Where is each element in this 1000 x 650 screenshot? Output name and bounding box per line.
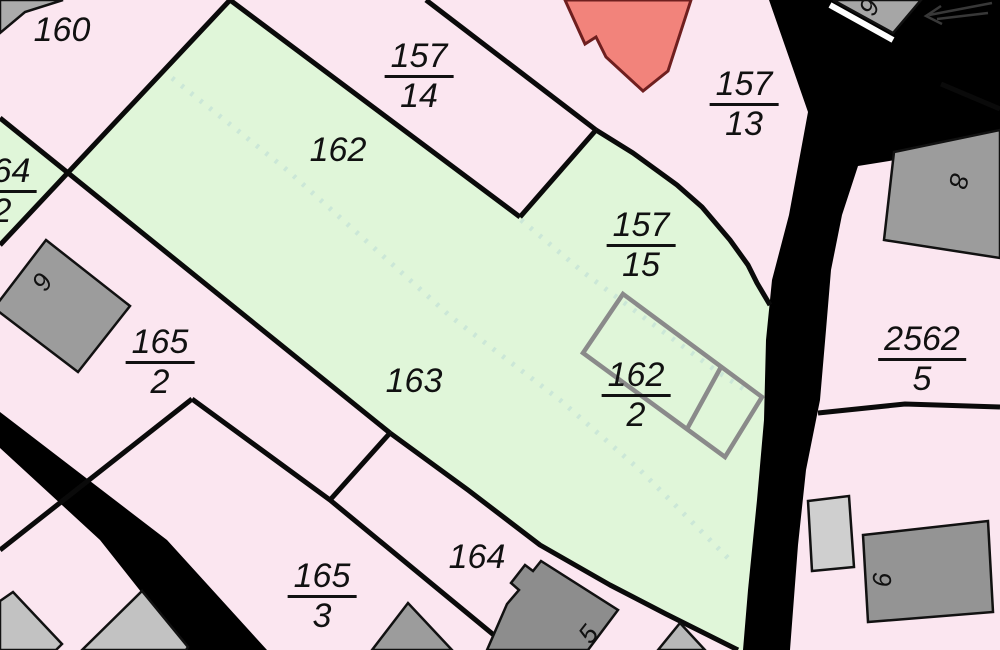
building-small-light — [808, 496, 854, 571]
building-8 — [884, 130, 1000, 258]
building-6 — [863, 521, 993, 622]
map-graphics — [0, 0, 1000, 650]
cadastral-map-canvas[interactable]: 1601571415713164216215715165216316222562… — [0, 0, 1000, 650]
